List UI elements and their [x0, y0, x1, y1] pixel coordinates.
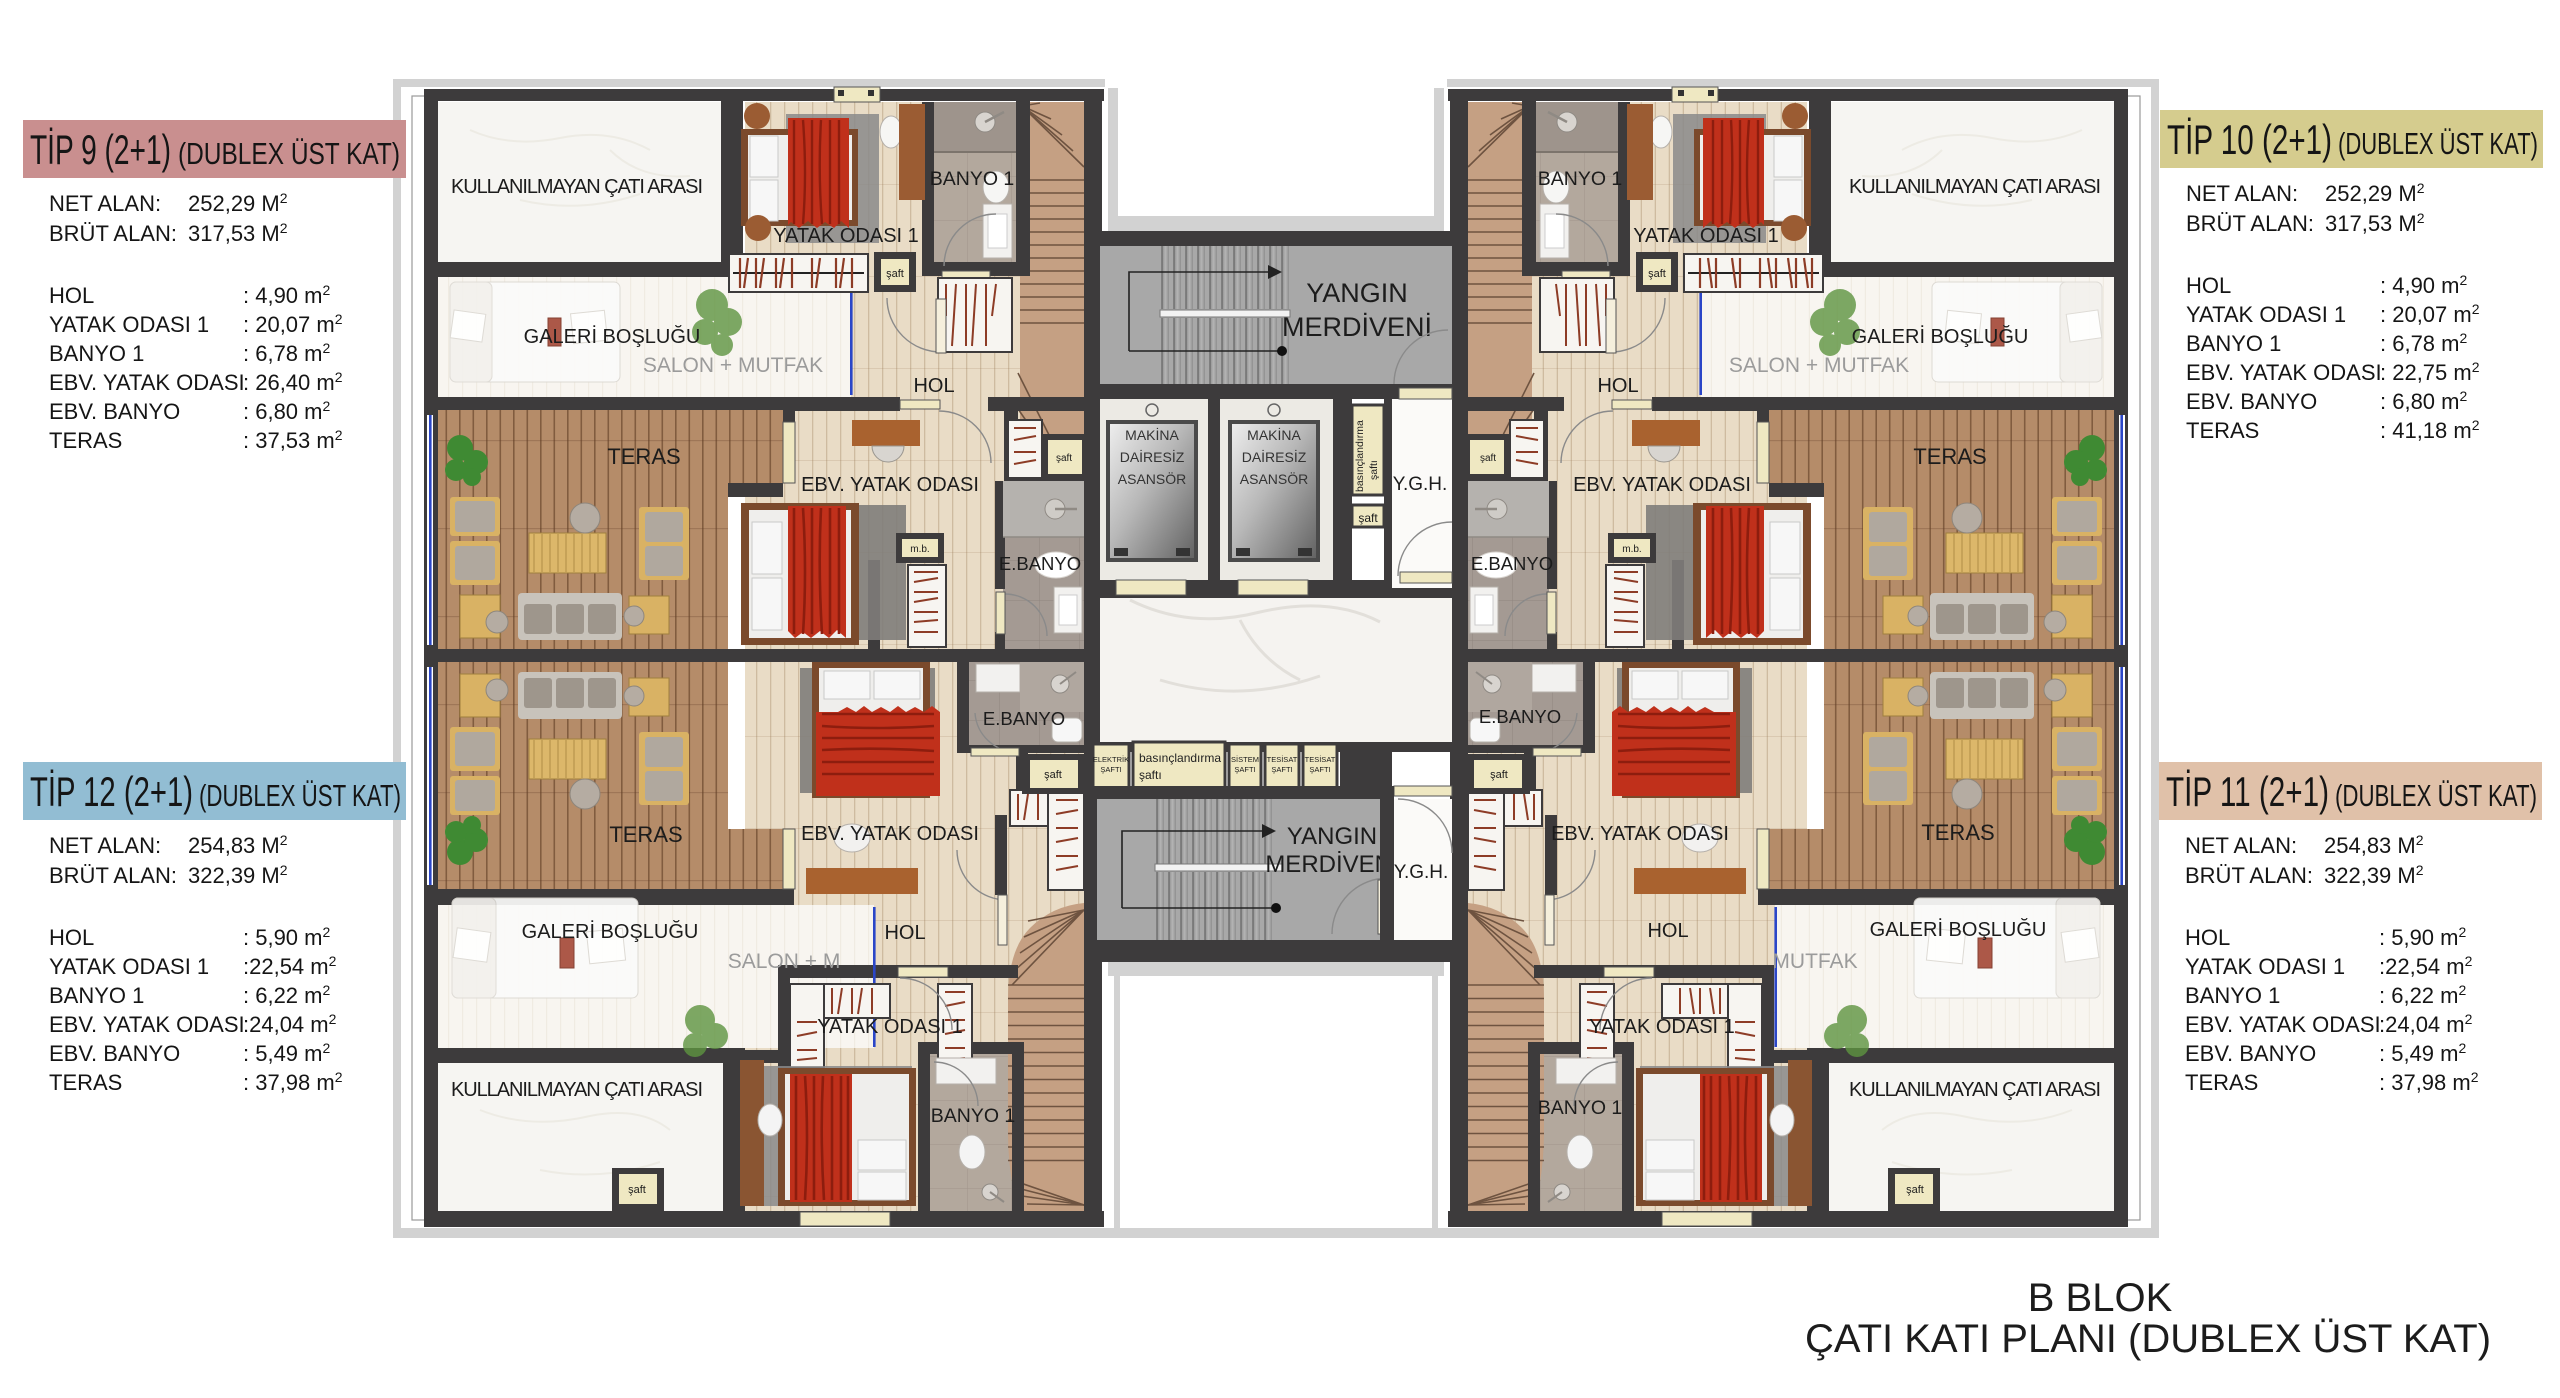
- svg-text:: 5,90 m2: : 5,90 m2: [243, 924, 330, 950]
- svg-text:şaftı: şaftı: [1368, 460, 1380, 480]
- svg-text:BRÜT ALAN:: BRÜT ALAN:: [49, 863, 177, 888]
- svg-text:BANYO 1: BANYO 1: [2185, 983, 2280, 1008]
- svg-text:m.b.: m.b.: [1622, 544, 1641, 555]
- svg-text:EBV. BANYO: EBV. BANYO: [49, 399, 180, 424]
- svg-text:E.BANYO: E.BANYO: [999, 553, 1081, 574]
- svg-text:254,83 M2: 254,83 M2: [188, 832, 288, 858]
- svg-text:(DUBLEX ÜST KAT): (DUBLEX ÜST KAT): [2338, 126, 2538, 161]
- svg-text:şaft: şaft: [886, 268, 904, 280]
- svg-text:GALERİ BOŞLUĞU: GALERİ BOŞLUĞU: [1852, 325, 2029, 348]
- svg-text:MERDİVENİ: MERDİVENİ: [1265, 851, 1398, 878]
- svg-text:YANGIN: YANGIN: [1287, 823, 1377, 850]
- svg-text:BANYO 1: BANYO 1: [2186, 331, 2281, 356]
- svg-text:BANYO 1: BANYO 1: [930, 168, 1015, 190]
- svg-text:SALON + MUTFAK: SALON + MUTFAK: [1729, 354, 1909, 377]
- svg-text:SALON + M: SALON + M: [728, 950, 841, 973]
- svg-text:HOL: HOL: [2185, 925, 2230, 950]
- svg-text:TERAS: TERAS: [1921, 820, 1994, 845]
- svg-text:: 26,40 m2: : 26,40 m2: [243, 369, 343, 395]
- svg-text:MAKİNA: MAKİNA: [1125, 426, 1179, 443]
- svg-text:: 22,75 m2: : 22,75 m2: [2380, 359, 2480, 385]
- svg-text:BANYO 1: BANYO 1: [931, 1105, 1016, 1127]
- svg-text:(DUBLEX ÜST KAT): (DUBLEX ÜST KAT): [2335, 778, 2537, 813]
- svg-text:YATAK ODASI 1: YATAK ODASI 1: [2186, 302, 2346, 327]
- svg-text:: 6,22 m2: : 6,22 m2: [2379, 982, 2466, 1008]
- svg-text:GALERİ BOŞLUĞU: GALERİ BOŞLUĞU: [1870, 918, 2047, 941]
- svg-text:: 6,78 m2: : 6,78 m2: [243, 340, 330, 366]
- svg-text:MAKİNA: MAKİNA: [1247, 426, 1301, 443]
- svg-text:: 4,90 m2: : 4,90 m2: [2380, 272, 2467, 298]
- svg-text:HOL: HOL: [2186, 273, 2231, 298]
- svg-text:254,83 M2: 254,83 M2: [2324, 832, 2424, 858]
- svg-text:TERAS: TERAS: [49, 1070, 122, 1095]
- svg-text:EBV. YATAK ODASI: EBV. YATAK ODASI: [2185, 1012, 2381, 1037]
- svg-text:Y.G.H.: Y.G.H.: [1394, 862, 1449, 883]
- svg-text:DAİRESİZ: DAİRESİZ: [1120, 448, 1185, 465]
- svg-text:: 41,18 m2: : 41,18 m2: [2380, 417, 2480, 443]
- svg-text:322,39 M2: 322,39 M2: [2324, 862, 2424, 888]
- svg-text:BANYO 1: BANYO 1: [1538, 168, 1623, 190]
- svg-text:HOL: HOL: [1647, 920, 1688, 942]
- svg-text:ŞAFTI: ŞAFTI: [1100, 765, 1121, 774]
- svg-text:: 6,80 m2: : 6,80 m2: [243, 398, 330, 424]
- svg-text:MERDİVENİ: MERDİVENİ: [1282, 311, 1432, 342]
- svg-text::24,04 m2: :24,04 m2: [243, 1011, 337, 1037]
- svg-text:EBV. BANYO: EBV. BANYO: [2186, 389, 2317, 414]
- svg-text:HOL: HOL: [1597, 375, 1638, 397]
- svg-text:TERAS: TERAS: [49, 428, 122, 453]
- svg-text:TERAS: TERAS: [2186, 418, 2259, 443]
- svg-text:SALON + MUTFAK: SALON + MUTFAK: [643, 354, 823, 377]
- svg-text:KULLANILMAYAN ÇATI ARASI: KULLANILMAYAN ÇATI ARASI: [1849, 176, 2101, 198]
- svg-text:: 5,49 m2: : 5,49 m2: [2379, 1040, 2466, 1066]
- svg-text:YATAK ODASI 1: YATAK ODASI 1: [49, 312, 209, 337]
- svg-text:EBV. BANYO: EBV. BANYO: [2185, 1041, 2316, 1066]
- svg-text:EBV. YATAK ODASI: EBV. YATAK ODASI: [1573, 474, 1751, 496]
- svg-text:: 20,07 m2: : 20,07 m2: [243, 311, 343, 337]
- svg-text:NET ALAN:: NET ALAN:: [2186, 181, 2298, 206]
- svg-text:şaft: şaft: [1480, 453, 1496, 464]
- svg-text:TİP 10 (2+1): TİP 10 (2+1): [2167, 116, 2332, 163]
- svg-text:şaft: şaft: [1044, 769, 1062, 781]
- svg-text:m.b.: m.b.: [910, 544, 929, 555]
- svg-text:YATAK ODASI 1: YATAK ODASI 1: [1633, 225, 1779, 247]
- svg-text:ŞAFTI: ŞAFTI: [1309, 765, 1330, 774]
- svg-text:SİSTEM: SİSTEM: [1231, 755, 1259, 764]
- svg-text:: 6,22 m2: : 6,22 m2: [243, 982, 330, 1008]
- svg-text:YANGIN: YANGIN: [1306, 278, 1408, 308]
- svg-text:YATAK ODASI 1: YATAK ODASI 1: [773, 225, 919, 247]
- svg-text:KULLANILMAYAN ÇATI ARASI: KULLANILMAYAN ÇATI ARASI: [451, 1079, 703, 1101]
- svg-text:BANYO 1: BANYO 1: [49, 341, 144, 366]
- svg-text:E.BANYO: E.BANYO: [1479, 706, 1561, 727]
- svg-text:şaft: şaft: [1906, 1184, 1924, 1196]
- svg-text:BANYO 1: BANYO 1: [49, 983, 144, 1008]
- svg-text:KULLANILMAYAN ÇATI ARASI: KULLANILMAYAN ÇATI ARASI: [1849, 1079, 2101, 1101]
- svg-text:317,53 M2: 317,53 M2: [188, 220, 288, 246]
- svg-text:E.BANYO: E.BANYO: [983, 708, 1065, 729]
- svg-text:şaft: şaft: [1490, 769, 1508, 781]
- svg-text:BRÜT ALAN:: BRÜT ALAN:: [49, 221, 177, 246]
- svg-text:HOL: HOL: [49, 925, 94, 950]
- svg-text:şaft: şaft: [1056, 453, 1072, 464]
- svg-text:NET ALAN:: NET ALAN:: [49, 833, 161, 858]
- svg-text:GALERİ BOŞLUĞU: GALERİ BOŞLUĞU: [522, 920, 699, 943]
- svg-text:(DUBLEX ÜST KAT): (DUBLEX ÜST KAT): [199, 778, 401, 813]
- svg-text:EBV. BANYO: EBV. BANYO: [49, 1041, 180, 1066]
- svg-text:EBV. YATAK ODASI: EBV. YATAK ODASI: [801, 474, 979, 496]
- svg-text:KULLANILMAYAN ÇATI ARASI: KULLANILMAYAN ÇATI ARASI: [451, 176, 703, 198]
- svg-text:ELEKTRİK: ELEKTRİK: [1093, 755, 1129, 764]
- svg-text:GALERİ BOŞLUĞU: GALERİ BOŞLUĞU: [524, 325, 701, 348]
- svg-text:TERAS: TERAS: [609, 822, 682, 847]
- svg-text:basınçlandırma: basınçlandırma: [1139, 751, 1221, 765]
- svg-text:DAİRESİZ: DAİRESİZ: [1242, 448, 1307, 465]
- svg-text:şaft: şaft: [1358, 511, 1378, 525]
- svg-text:BRÜT ALAN:: BRÜT ALAN:: [2186, 211, 2314, 236]
- svg-text:(DUBLEX ÜST KAT): (DUBLEX ÜST KAT): [178, 136, 400, 171]
- svg-text:TİP 11 (2+1): TİP 11 (2+1): [2166, 768, 2329, 815]
- svg-text:: 20,07 m2: : 20,07 m2: [2380, 301, 2480, 327]
- svg-text:EBV. YATAK ODASI: EBV. YATAK ODASI: [801, 823, 979, 845]
- svg-text:: 6,80 m2: : 6,80 m2: [2380, 388, 2467, 414]
- svg-text:şaft: şaft: [628, 1184, 646, 1196]
- svg-text:ŞAFTI: ŞAFTI: [1234, 765, 1255, 774]
- svg-text:BANYO 1: BANYO 1: [1538, 1097, 1623, 1119]
- svg-text:basınçlandırma: basınçlandırma: [1354, 420, 1366, 492]
- svg-text:322,39 M2: 322,39 M2: [188, 862, 288, 888]
- svg-text:TERAS: TERAS: [2185, 1070, 2258, 1095]
- svg-text:: 37,53 m2: : 37,53 m2: [243, 427, 343, 453]
- svg-text:YATAK ODASI 1: YATAK ODASI 1: [1589, 1016, 1735, 1038]
- svg-text:şaftı: şaftı: [1139, 768, 1162, 782]
- svg-text:TERAS: TERAS: [607, 444, 680, 469]
- svg-text:TESİSAT: TESİSAT: [1305, 755, 1336, 764]
- svg-text:HOL: HOL: [49, 283, 94, 308]
- svg-text:: 6,78 m2: : 6,78 m2: [2380, 330, 2467, 356]
- svg-text:ŞAFTI: ŞAFTI: [1271, 765, 1292, 774]
- svg-text:EBV. YATAK ODASI: EBV. YATAK ODASI: [2186, 360, 2382, 385]
- svg-text:ASANSÖR: ASANSÖR: [1240, 470, 1308, 487]
- svg-text::22,54 m2: :22,54 m2: [243, 953, 337, 979]
- svg-text:YATAK ODASI 1: YATAK ODASI 1: [2185, 954, 2345, 979]
- svg-text:EBV. YATAK ODASI: EBV. YATAK ODASI: [1551, 823, 1729, 845]
- svg-text:: 4,90 m2: : 4,90 m2: [243, 282, 330, 308]
- svg-text:252,29 M2: 252,29 M2: [2325, 180, 2425, 206]
- svg-text:ÇATI KATI PLANI (DUBLEX ÜST KA: ÇATI KATI PLANI (DUBLEX ÜST KAT): [1805, 1317, 2491, 1361]
- svg-text:NET ALAN:: NET ALAN:: [49, 191, 161, 216]
- svg-text:YATAK ODASI 1: YATAK ODASI 1: [49, 954, 209, 979]
- svg-text:: 5,90 m2: : 5,90 m2: [2379, 924, 2466, 950]
- svg-text:BRÜT ALAN:: BRÜT ALAN:: [2185, 863, 2313, 888]
- svg-text::22,54 m2: :22,54 m2: [2379, 953, 2473, 979]
- svg-text:Y.G.H.: Y.G.H.: [1393, 474, 1448, 495]
- svg-text:ASANSÖR: ASANSÖR: [1118, 470, 1186, 487]
- svg-text:TİP 12 (2+1): TİP 12 (2+1): [30, 768, 193, 815]
- svg-text:: 37,98 m2: : 37,98 m2: [243, 1069, 343, 1095]
- svg-text:TİP 9 (2+1): TİP 9 (2+1): [30, 126, 171, 173]
- svg-text:TESİSAT: TESİSAT: [1267, 755, 1298, 764]
- svg-text:şaft: şaft: [1648, 268, 1666, 280]
- svg-text:: 37,98 m2: : 37,98 m2: [2379, 1069, 2479, 1095]
- svg-text:252,29 M2: 252,29 M2: [188, 190, 288, 216]
- svg-text:317,53 M2: 317,53 M2: [2325, 210, 2425, 236]
- svg-text::24,04 m2: :24,04 m2: [2379, 1011, 2473, 1037]
- svg-text:TERAS: TERAS: [1913, 444, 1986, 469]
- svg-text:NET ALAN:: NET ALAN:: [2185, 833, 2297, 858]
- svg-text:E.BANYO: E.BANYO: [1471, 553, 1553, 574]
- svg-text:HOL: HOL: [884, 922, 925, 944]
- svg-text:HOL: HOL: [913, 375, 954, 397]
- svg-text:B BLOK: B BLOK: [2028, 1276, 2173, 1320]
- svg-text:EBV. YATAK ODASI: EBV. YATAK ODASI: [49, 1012, 245, 1037]
- svg-text:: 5,49 m2: : 5,49 m2: [243, 1040, 330, 1066]
- svg-text:EBV. YATAK ODASI: EBV. YATAK ODASI: [49, 370, 245, 395]
- svg-text:MUTFAK: MUTFAK: [1772, 950, 1857, 973]
- svg-text:YATAK ODASI 1: YATAK ODASI 1: [817, 1016, 963, 1038]
